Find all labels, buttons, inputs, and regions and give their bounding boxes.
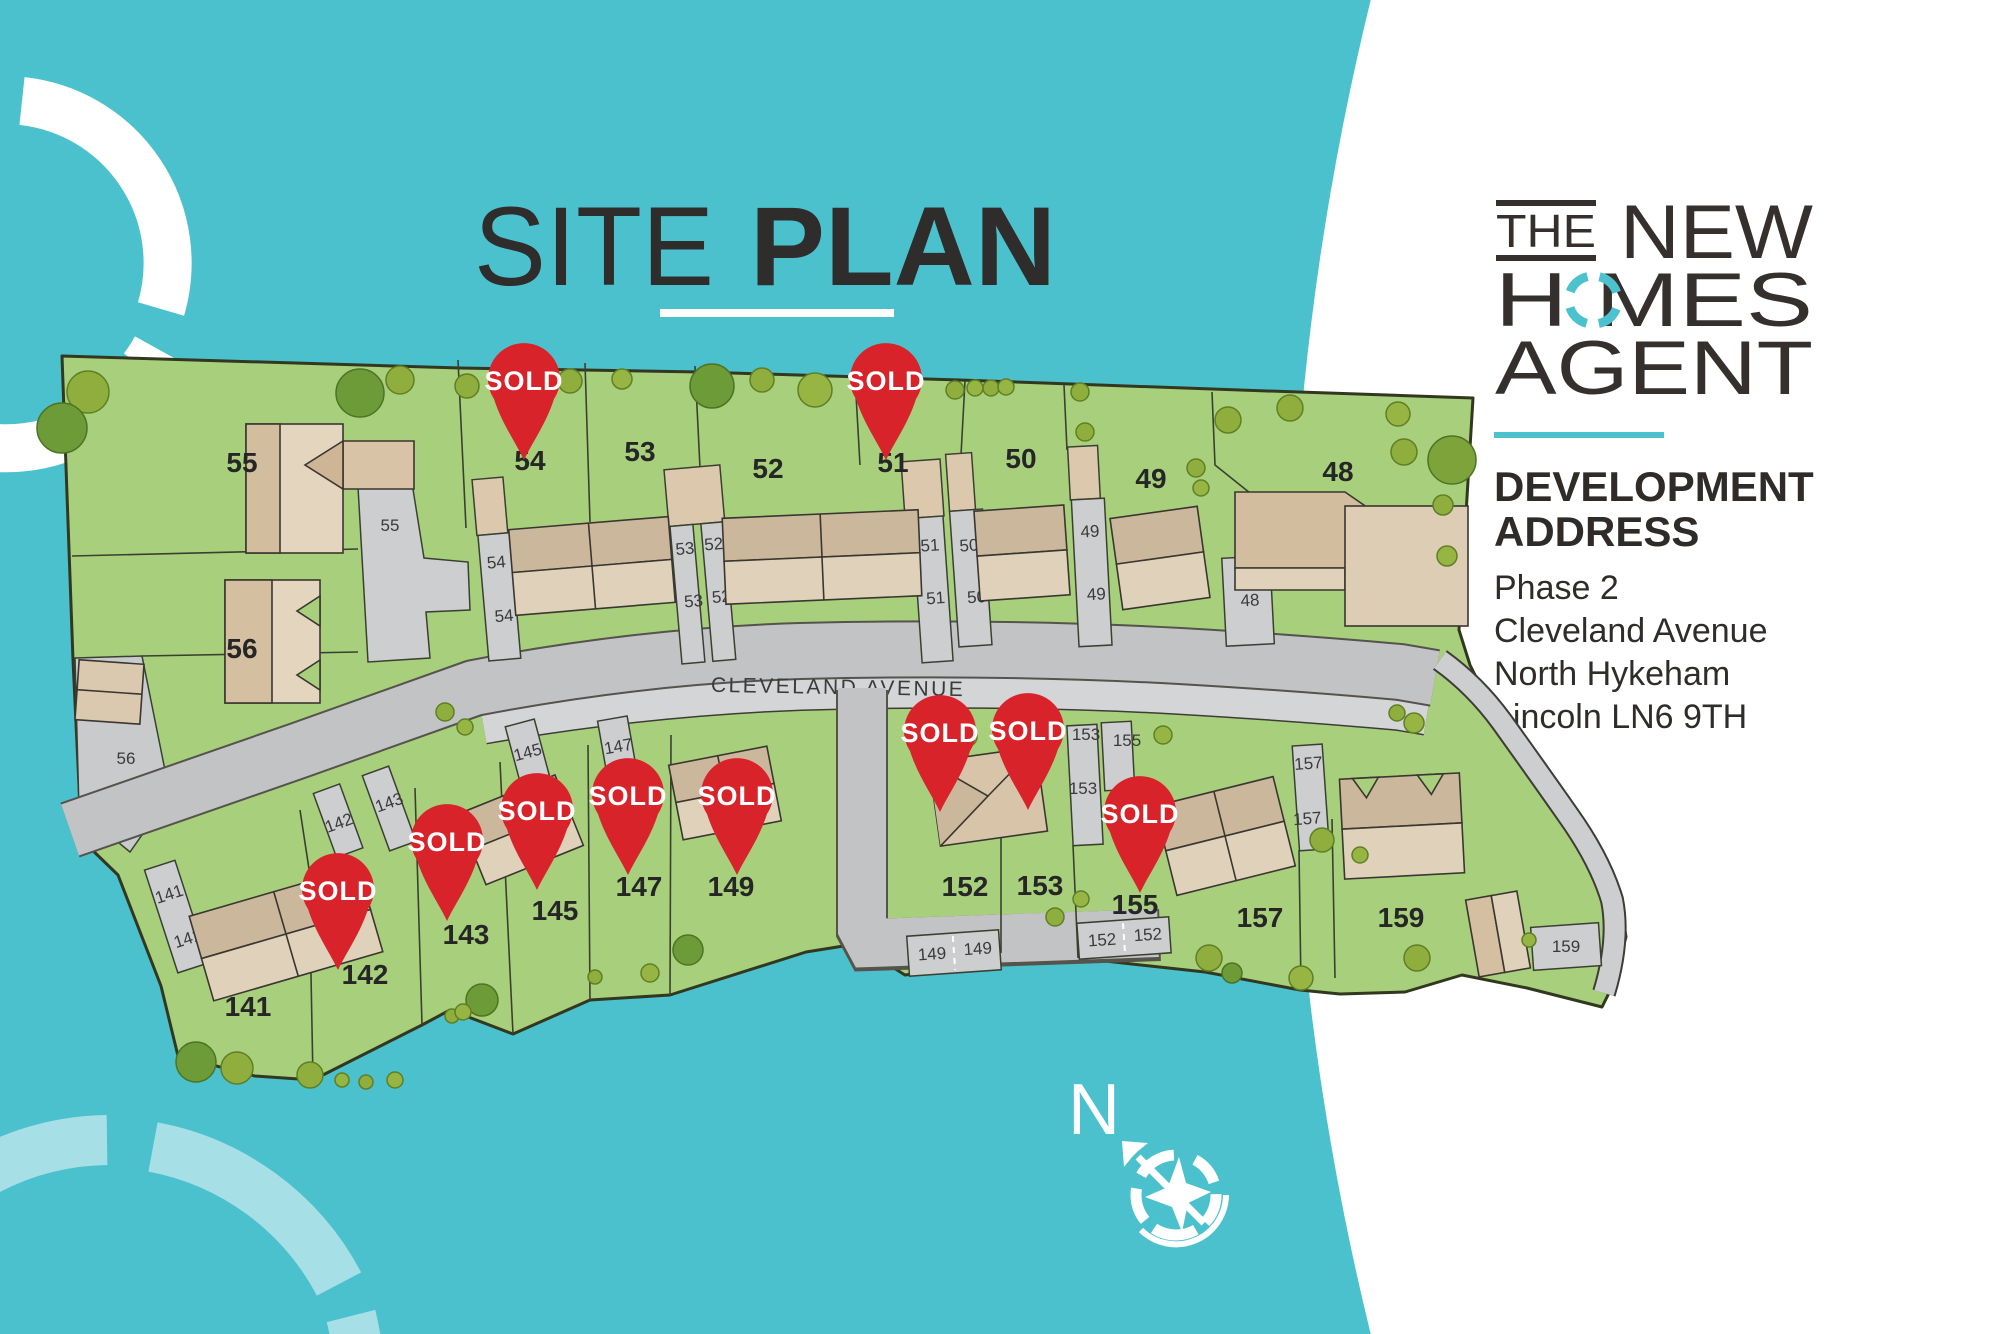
svg-text:DEVELOPMENT: DEVELOPMENT bbox=[1494, 463, 1814, 510]
svg-text:PLAN: PLAN bbox=[750, 184, 1056, 309]
svg-text:145: 145 bbox=[532, 895, 579, 926]
svg-text:Cleveland Avenue: Cleveland Avenue bbox=[1494, 612, 1767, 650]
svg-text:AGENT: AGENT bbox=[1495, 326, 1813, 411]
svg-text:55: 55 bbox=[226, 447, 257, 478]
svg-text:153: 153 bbox=[1017, 870, 1064, 901]
svg-text:152: 152 bbox=[942, 871, 989, 902]
svg-text:147: 147 bbox=[616, 871, 663, 902]
svg-text:Phase 2: Phase 2 bbox=[1494, 569, 1619, 607]
svg-text:51: 51 bbox=[926, 588, 946, 608]
svg-text:49: 49 bbox=[1086, 584, 1106, 604]
svg-text:THE: THE bbox=[1496, 205, 1596, 257]
svg-text:153: 153 bbox=[1069, 779, 1097, 798]
svg-text:51: 51 bbox=[920, 535, 940, 555]
svg-text:141: 141 bbox=[225, 991, 272, 1022]
svg-text:49: 49 bbox=[1135, 463, 1166, 494]
svg-text:149: 149 bbox=[708, 871, 755, 902]
svg-text:153: 153 bbox=[1072, 725, 1100, 744]
svg-text:55: 55 bbox=[381, 516, 400, 535]
svg-text:ADDRESS: ADDRESS bbox=[1494, 508, 1699, 555]
svg-text:159: 159 bbox=[1378, 902, 1425, 933]
svg-text:N: N bbox=[1068, 1070, 1120, 1150]
svg-text:152: 152 bbox=[1133, 924, 1163, 945]
svg-text:54: 54 bbox=[494, 606, 515, 627]
svg-text:142: 142 bbox=[342, 959, 389, 990]
svg-text:53: 53 bbox=[675, 538, 696, 559]
svg-text:159: 159 bbox=[1552, 937, 1580, 956]
svg-text:149: 149 bbox=[917, 944, 947, 965]
svg-text:52: 52 bbox=[703, 534, 724, 555]
svg-text:56: 56 bbox=[117, 749, 136, 768]
svg-text:157: 157 bbox=[1294, 753, 1324, 774]
svg-text:155: 155 bbox=[1112, 889, 1159, 920]
svg-text:49: 49 bbox=[1080, 521, 1100, 541]
svg-text:157: 157 bbox=[1292, 808, 1322, 829]
svg-text:52: 52 bbox=[752, 453, 783, 484]
svg-text:48: 48 bbox=[1322, 456, 1353, 487]
svg-text:53: 53 bbox=[624, 436, 655, 467]
svg-text:143: 143 bbox=[443, 919, 490, 950]
svg-text:152: 152 bbox=[1087, 930, 1117, 951]
svg-text:155: 155 bbox=[1113, 731, 1141, 750]
svg-text:50: 50 bbox=[1005, 443, 1036, 474]
svg-text:48: 48 bbox=[1240, 590, 1260, 610]
svg-text:54: 54 bbox=[486, 552, 507, 573]
svg-text:Lincoln LN6 9TH: Lincoln LN6 9TH bbox=[1494, 698, 1747, 736]
svg-text:157: 157 bbox=[1237, 902, 1284, 933]
svg-text:SITE: SITE bbox=[474, 184, 714, 309]
svg-text:53: 53 bbox=[683, 591, 704, 612]
svg-text:56: 56 bbox=[226, 633, 257, 664]
svg-text:149: 149 bbox=[963, 938, 993, 959]
svg-text:North Hykeham: North Hykeham bbox=[1494, 655, 1730, 693]
